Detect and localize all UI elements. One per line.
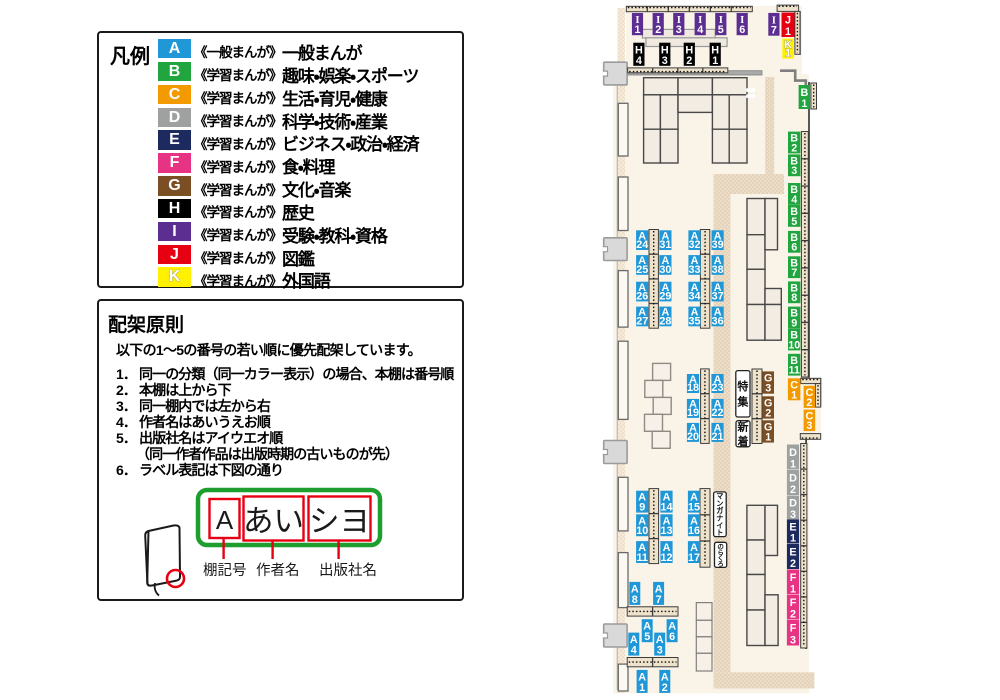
svg-text:9: 9 xyxy=(791,317,797,329)
svg-text:1: 1 xyxy=(790,584,796,596)
svg-text:4: 4 xyxy=(636,55,642,67)
svg-text:特: 特 xyxy=(737,379,748,393)
svg-text:17: 17 xyxy=(688,552,700,564)
svg-text:22: 22 xyxy=(711,407,723,419)
svg-text:着: 着 xyxy=(737,434,749,448)
svg-text:3: 3 xyxy=(790,509,796,521)
svg-text:5: 5 xyxy=(644,631,650,643)
svg-text:6: 6 xyxy=(739,24,745,36)
svg-text:38: 38 xyxy=(712,264,724,276)
svg-text:11: 11 xyxy=(636,552,647,564)
svg-text:16: 16 xyxy=(688,525,700,537)
svg-text:15: 15 xyxy=(688,502,700,514)
svg-text:2: 2 xyxy=(790,558,796,570)
svg-text:2: 2 xyxy=(791,142,797,154)
svg-text:5: 5 xyxy=(791,216,797,228)
svg-text:3: 3 xyxy=(806,420,812,432)
svg-text:4: 4 xyxy=(697,24,703,36)
svg-text:3: 3 xyxy=(676,24,682,36)
svg-text:6: 6 xyxy=(669,631,675,643)
svg-text:23: 23 xyxy=(711,382,723,394)
svg-text:2: 2 xyxy=(686,55,692,67)
svg-text:8: 8 xyxy=(791,292,797,304)
svg-text:2: 2 xyxy=(790,609,796,621)
svg-text:D: D xyxy=(789,447,797,459)
svg-text:ろ: ろ xyxy=(717,560,724,568)
svg-text:9: 9 xyxy=(639,502,645,514)
svg-text:25: 25 xyxy=(636,264,648,276)
svg-text:37: 37 xyxy=(712,290,724,302)
svg-text:4: 4 xyxy=(631,645,637,657)
svg-text:20: 20 xyxy=(687,431,699,443)
svg-text:2: 2 xyxy=(790,484,796,496)
svg-text:5: 5 xyxy=(718,24,724,36)
svg-text:3: 3 xyxy=(662,55,668,67)
svg-text:10: 10 xyxy=(788,339,800,351)
svg-text:1: 1 xyxy=(634,24,640,36)
svg-text:34: 34 xyxy=(688,290,700,302)
svg-text:19: 19 xyxy=(687,407,699,419)
svg-text:18: 18 xyxy=(687,382,699,394)
svg-text:26: 26 xyxy=(636,290,648,302)
svg-text:7: 7 xyxy=(771,25,777,37)
svg-text:新: 新 xyxy=(737,420,749,434)
svg-text:21: 21 xyxy=(711,431,723,443)
svg-text:1: 1 xyxy=(712,55,718,67)
svg-text:30: 30 xyxy=(659,264,671,276)
svg-text:24: 24 xyxy=(636,239,648,251)
svg-text:D: D xyxy=(789,498,797,510)
svg-text:1: 1 xyxy=(765,432,771,444)
svg-text:4: 4 xyxy=(791,194,797,206)
svg-text:F: F xyxy=(790,623,797,635)
svg-text:28: 28 xyxy=(659,315,671,327)
svg-text:3: 3 xyxy=(765,383,771,395)
svg-text:1: 1 xyxy=(785,26,791,38)
svg-text:29: 29 xyxy=(659,290,671,302)
svg-text:E: E xyxy=(789,546,796,558)
svg-text:33: 33 xyxy=(688,264,700,276)
svg-text:10: 10 xyxy=(636,525,648,537)
svg-text:ト: ト xyxy=(716,528,723,537)
svg-text:1: 1 xyxy=(785,48,791,60)
svg-text:1: 1 xyxy=(639,682,645,694)
svg-text:12: 12 xyxy=(660,552,672,564)
svg-text:2: 2 xyxy=(765,408,771,420)
svg-text:J: J xyxy=(785,15,791,27)
svg-text:39: 39 xyxy=(712,239,724,251)
svg-text:2: 2 xyxy=(806,397,812,409)
svg-text:F: F xyxy=(790,597,797,609)
svg-text:35: 35 xyxy=(688,315,700,327)
svg-text:集: 集 xyxy=(736,395,749,409)
svg-text:1: 1 xyxy=(790,459,796,471)
svg-text:13: 13 xyxy=(660,525,672,537)
svg-text:8: 8 xyxy=(632,594,638,606)
svg-text:D: D xyxy=(789,472,797,484)
svg-text:3: 3 xyxy=(791,165,797,177)
svg-text:27: 27 xyxy=(636,315,648,327)
svg-text:3: 3 xyxy=(790,635,796,647)
svg-text:2: 2 xyxy=(655,24,661,36)
svg-text:6: 6 xyxy=(791,242,797,254)
svg-text:2: 2 xyxy=(662,682,668,694)
svg-text:7: 7 xyxy=(656,594,662,606)
svg-text:11: 11 xyxy=(788,365,799,377)
svg-text:F: F xyxy=(790,572,797,584)
svg-text:1: 1 xyxy=(801,98,807,110)
svg-text:7: 7 xyxy=(791,267,797,279)
svg-text:36: 36 xyxy=(712,315,724,327)
svg-text:31: 31 xyxy=(659,239,671,251)
svg-text:1: 1 xyxy=(790,533,796,545)
svg-text:14: 14 xyxy=(660,502,672,514)
svg-text:3: 3 xyxy=(657,645,663,657)
svg-text:1: 1 xyxy=(791,389,797,401)
svg-text:32: 32 xyxy=(688,239,700,251)
